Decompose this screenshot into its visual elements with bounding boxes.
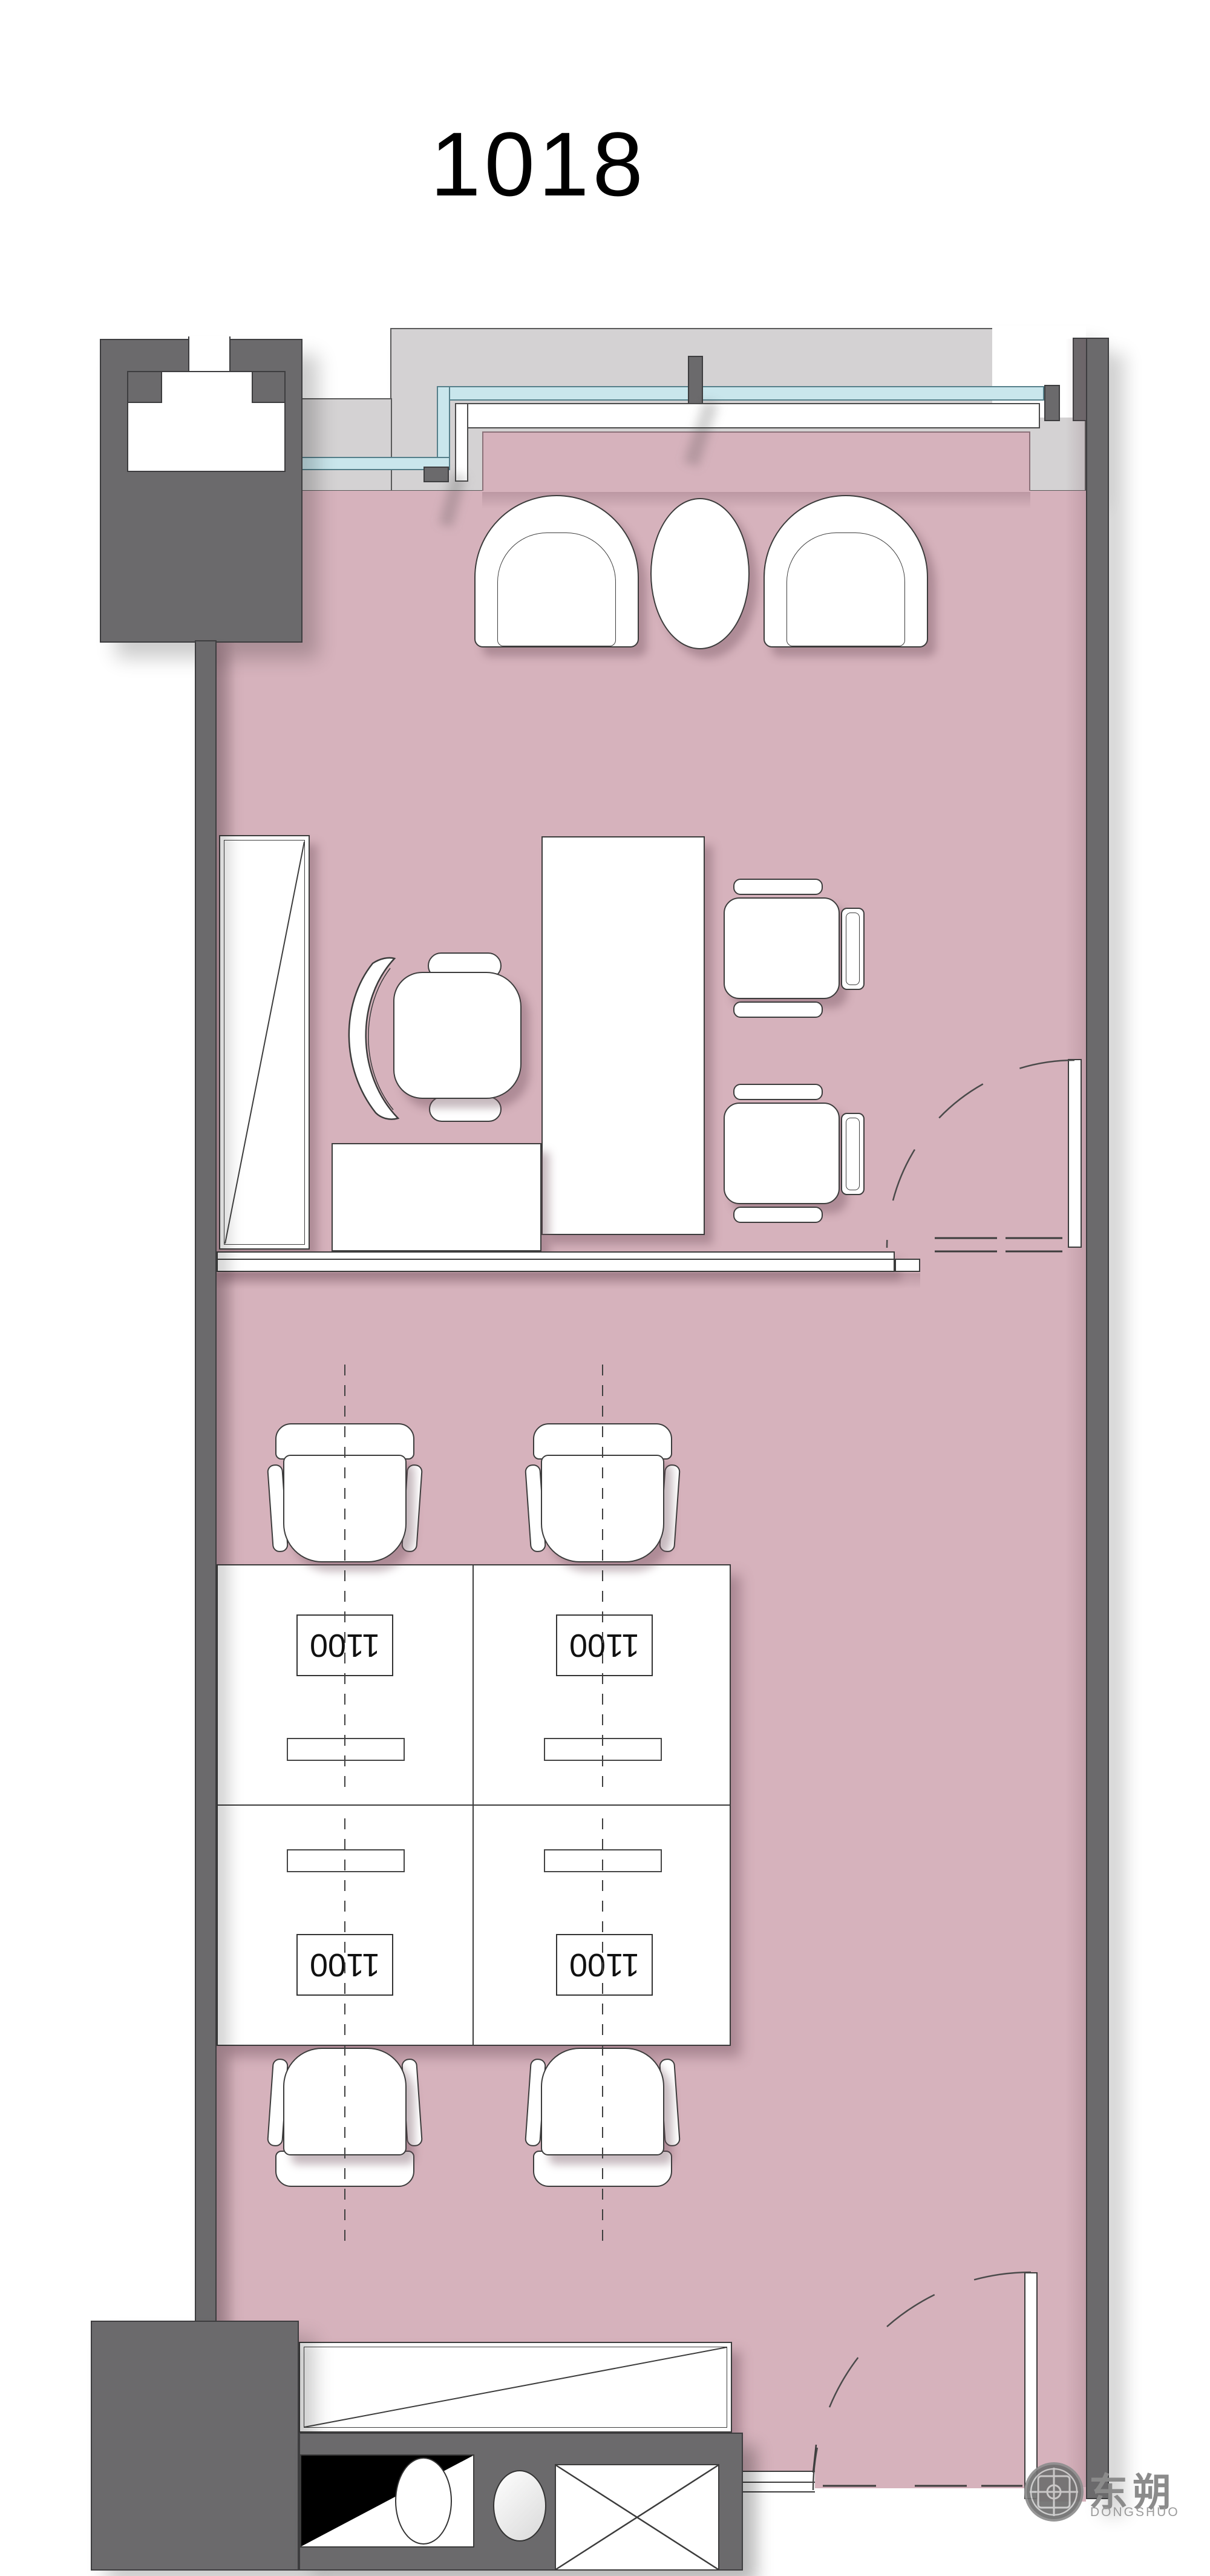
workstation-label-3: 1100 bbox=[296, 1934, 393, 1996]
threshold-line-top bbox=[732, 2471, 815, 2472]
desk-tray-3 bbox=[287, 1849, 405, 1872]
floor-plan-canvas: 1018 1 bbox=[0, 0, 1210, 2576]
desk-return bbox=[332, 1143, 541, 1251]
low-credenza bbox=[217, 1251, 895, 1272]
window-sill-band bbox=[455, 403, 1040, 428]
executive-chair-armrest-bottom bbox=[429, 1096, 502, 1122]
wall-block-bottom-left bbox=[91, 2321, 299, 2571]
pantry-counter-inner bbox=[304, 2347, 727, 2428]
lounge-armchair-right-seat bbox=[786, 533, 905, 646]
task-chair-1-backrest bbox=[275, 1423, 414, 1460]
guest-chair-2-armrest-bottom bbox=[733, 1207, 823, 1223]
shaft-tooth-right bbox=[252, 371, 286, 403]
wall-right bbox=[1086, 338, 1109, 2499]
task-chair-3-backrest bbox=[275, 2151, 414, 2187]
low-credenza-line bbox=[218, 1259, 894, 1260]
doorway-exterior bbox=[814, 2488, 1038, 2576]
workstation-label-1: 1100 bbox=[296, 1614, 393, 1676]
desk-tray-2 bbox=[544, 1738, 662, 1761]
threshold bbox=[732, 2471, 815, 2519]
window-glazing-band bbox=[437, 386, 1044, 401]
guest-chair-1-armrest-top bbox=[733, 879, 823, 895]
entry-door-leaf bbox=[1024, 2272, 1038, 2499]
workstation-label-4: 1100 bbox=[556, 1934, 653, 1996]
workstation-label-2: 1100 bbox=[556, 1614, 653, 1676]
task-chair-3-seat bbox=[283, 2048, 407, 2155]
task-chair-2-seat bbox=[541, 1455, 664, 1562]
executive-desk bbox=[541, 836, 705, 1235]
floor-sliver bbox=[1036, 2488, 1086, 2502]
shaft-tooth-left bbox=[127, 371, 162, 403]
guest-chair-1-seat bbox=[724, 897, 840, 999]
guest-chair-1-backrest-inner bbox=[846, 913, 860, 985]
round-side-table bbox=[650, 498, 750, 649]
watermark-text-en: DONGSHUO bbox=[1090, 2505, 1205, 2520]
office-door-leaf bbox=[1068, 1059, 1082, 1248]
window-sill-jog bbox=[455, 403, 468, 482]
task-chair-1-seat bbox=[283, 1455, 407, 1562]
guest-chair-1-armrest-bottom bbox=[733, 1001, 823, 1018]
desk-tray-1 bbox=[287, 1738, 405, 1761]
sink-basin bbox=[395, 2457, 452, 2545]
threshold-line-mid bbox=[732, 2482, 815, 2483]
window-post-right bbox=[1044, 385, 1060, 421]
threshold-line-bottom bbox=[732, 2491, 815, 2492]
room-number-title: 1018 bbox=[387, 112, 690, 217]
guest-chair-2-backrest-inner bbox=[846, 1118, 860, 1190]
task-chair-2-backrest bbox=[533, 1423, 672, 1460]
window-post-left bbox=[423, 467, 449, 482]
task-chair-4-backrest bbox=[533, 2151, 672, 2187]
curtain-ledge bbox=[482, 431, 1030, 492]
guest-chair-2-seat bbox=[724, 1103, 840, 1204]
desk-block-divider-h bbox=[217, 1804, 730, 1806]
vent-shaft-box bbox=[555, 2464, 719, 2571]
credenza-shadow bbox=[217, 1273, 920, 1289]
fixture-oval bbox=[493, 2470, 546, 2542]
wall-shadow-left bbox=[217, 491, 236, 2488]
lounge-armchair-left-seat bbox=[497, 533, 616, 646]
executive-chair-seat bbox=[393, 972, 522, 1099]
task-chair-4-seat bbox=[541, 2048, 664, 2155]
wall-left bbox=[195, 640, 217, 2322]
low-credenza-end bbox=[895, 1259, 920, 1272]
desk-tray-4 bbox=[544, 1849, 662, 1872]
tall-cabinet-inner bbox=[224, 840, 305, 1245]
balcony-slab-left-step bbox=[296, 398, 392, 491]
wall-shadow-right bbox=[1065, 339, 1086, 2487]
guest-chair-2-armrest-top bbox=[733, 1084, 823, 1100]
